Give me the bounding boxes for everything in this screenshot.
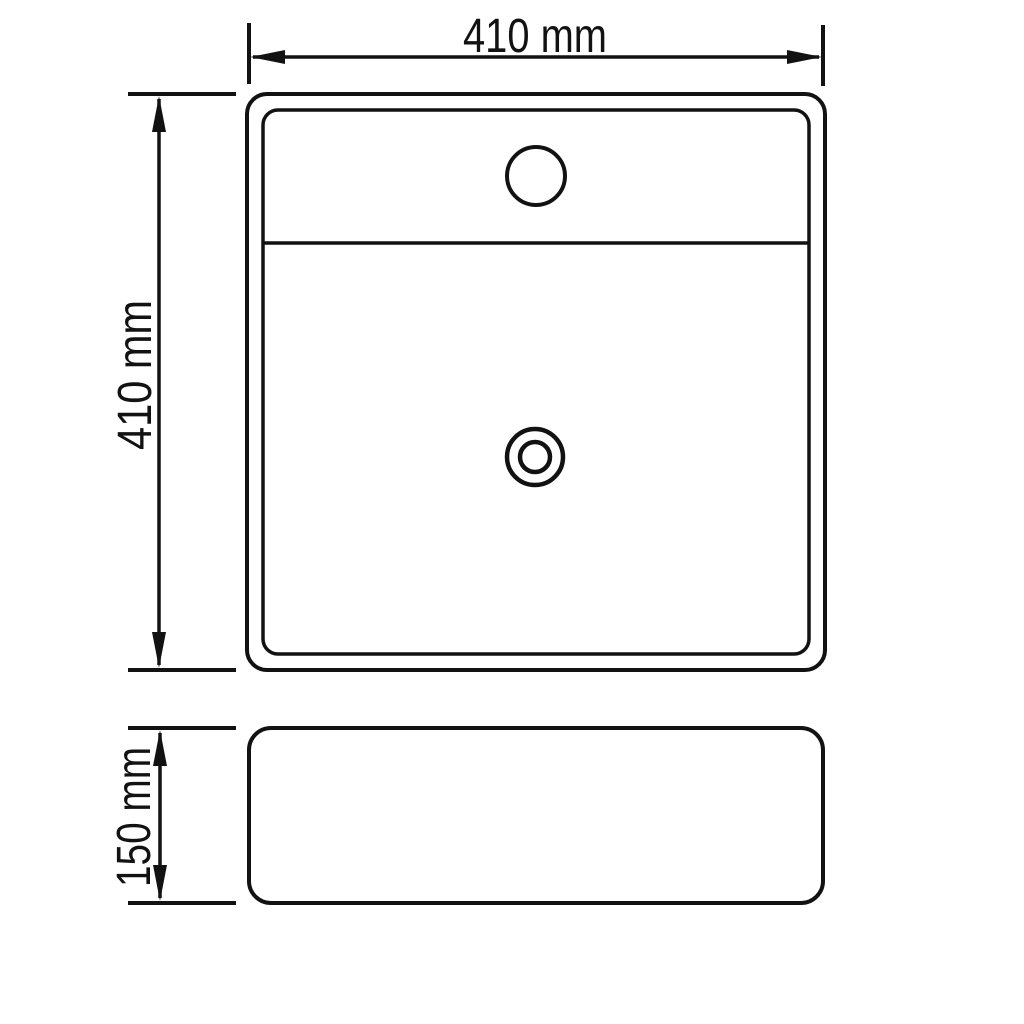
dim-top-arrowhead-left-icon [250,50,285,64]
sink-top-view [247,94,825,670]
side-view-outline [249,728,823,903]
technical-drawing-svg: 410 mm 410 mm [0,0,1024,1024]
dim-top-arrowhead-right-icon [787,50,822,64]
top-view-outer-rim [247,94,825,670]
dimension-side-height: 150 mm [108,728,236,903]
dim-left-arrowhead-down-icon [152,632,166,668]
top-view-inner-rim [263,110,809,654]
faucet-hole [507,147,565,205]
drain-inner-ring [520,442,550,472]
dim-height-label: 150 mm [108,747,161,887]
dimension-left-depth: 410 mm [109,94,236,670]
dim-left-arrowhead-up-icon [152,96,166,132]
sink-dimension-diagram: 410 mm 410 mm [0,0,1024,1024]
dimension-top-width: 410 mm [249,10,823,86]
drain-outer-ring [507,429,563,485]
sink-side-view [249,728,823,903]
dim-left-label: 410 mm [109,300,162,450]
dim-top-label: 410 mm [463,10,607,63]
